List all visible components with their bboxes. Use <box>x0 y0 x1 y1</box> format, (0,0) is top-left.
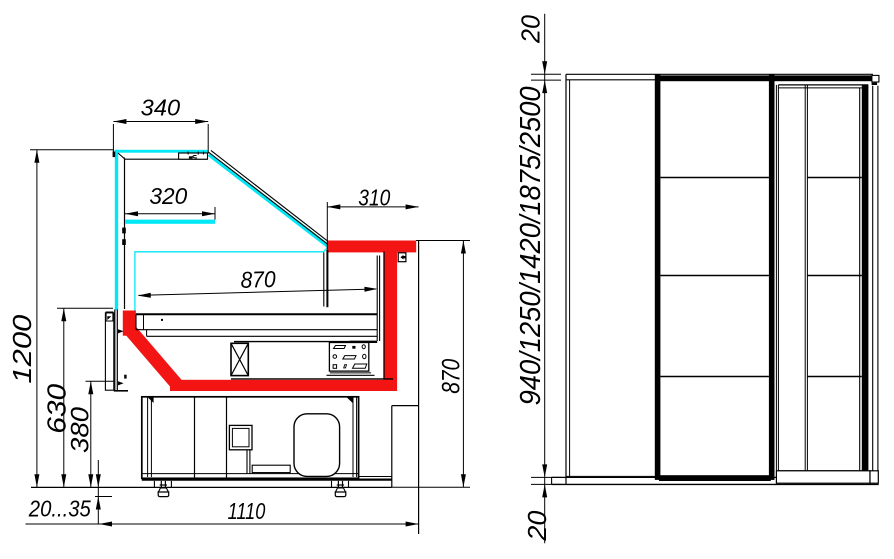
svg-text:1200: 1200 <box>7 314 37 384</box>
svg-text:320: 320 <box>149 183 187 209</box>
svg-text:340: 340 <box>141 95 181 121</box>
svg-text:940/1250/1420/1875/2500: 940/1250/1420/1875/2500 <box>515 86 547 405</box>
svg-text:20...35: 20...35 <box>28 496 91 522</box>
svg-text:310: 310 <box>358 185 390 211</box>
svg-text:1110: 1110 <box>228 498 266 524</box>
svg-text:380: 380 <box>67 407 95 453</box>
svg-text:20: 20 <box>522 510 552 542</box>
svg-text:20: 20 <box>516 14 546 43</box>
svg-text:870: 870 <box>437 359 465 394</box>
svg-text:870: 870 <box>240 266 276 293</box>
